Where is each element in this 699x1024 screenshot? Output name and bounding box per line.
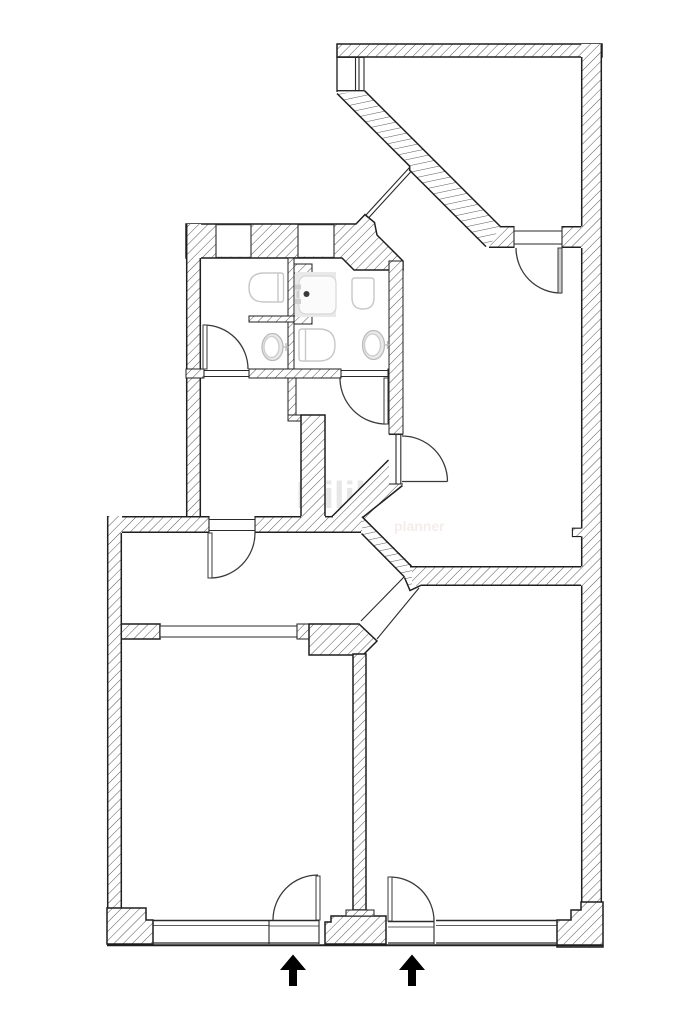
svg-text:planner: planner <box>394 518 445 534</box>
